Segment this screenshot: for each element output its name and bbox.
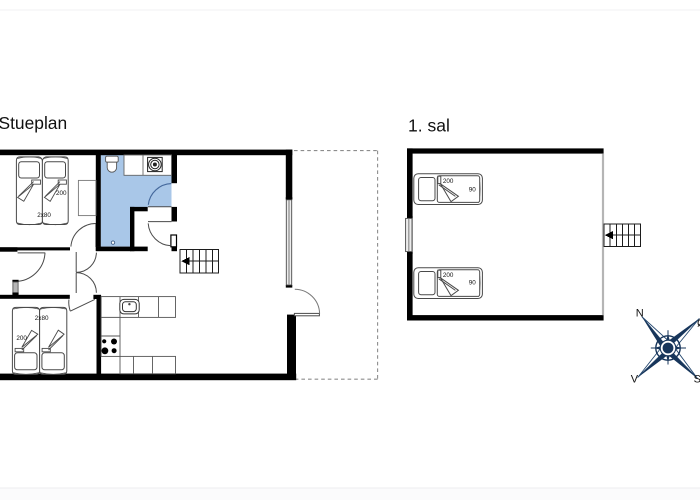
- svg-text:Stueplan: Stueplan: [0, 113, 67, 133]
- svg-text:200: 200: [56, 190, 67, 197]
- svg-text:90: 90: [469, 186, 477, 193]
- svg-text:S: S: [694, 373, 700, 385]
- svg-text:200: 200: [443, 178, 454, 185]
- svg-text:200: 200: [443, 272, 454, 279]
- svg-text:V: V: [631, 373, 639, 385]
- svg-text:N: N: [636, 308, 644, 320]
- svg-text:200: 200: [16, 335, 27, 342]
- svg-text:2x80: 2x80: [35, 315, 49, 322]
- svg-text:2x80: 2x80: [37, 212, 51, 219]
- svg-text:1. sal: 1. sal: [408, 115, 450, 135]
- svg-text:90: 90: [469, 280, 477, 287]
